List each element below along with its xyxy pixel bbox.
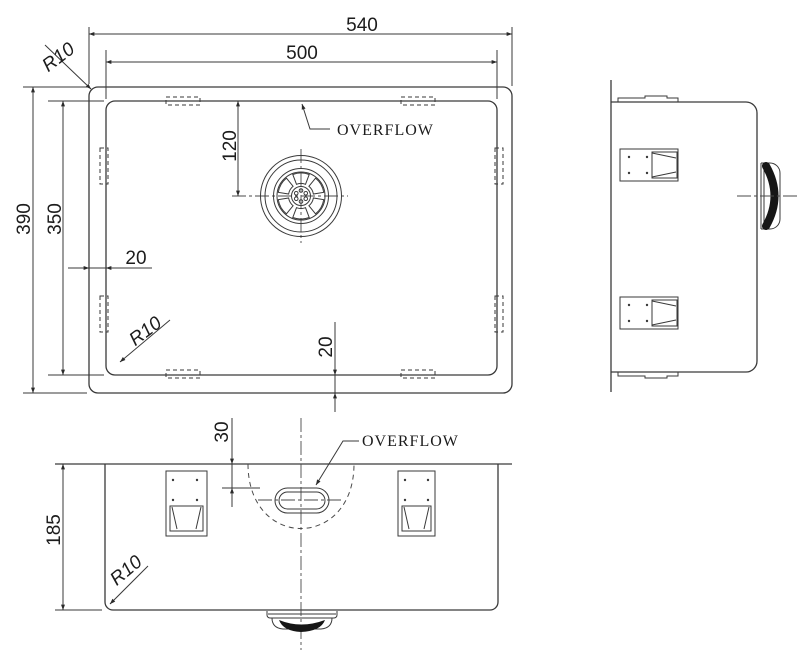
radius-callout-inner: R10 <box>120 312 170 362</box>
front-drain-fitting <box>267 611 337 632</box>
radius-inner-label: R10 <box>125 312 166 350</box>
overflow-callout-front: OVERFLOW <box>316 433 459 485</box>
technical-drawing-canvas: 540 500 390 350 120 <box>0 0 800 668</box>
dim-left-gap-label: 20 <box>125 248 146 269</box>
bowl-profile <box>611 102 757 372</box>
outer-rim-outline <box>89 87 512 393</box>
clip-bottom-left <box>166 370 200 378</box>
front-view: 30 OVERFLOW 185 R10 <box>44 418 512 650</box>
radius-callout-front: R10 <box>106 551 148 604</box>
radius-front-label: R10 <box>106 551 147 590</box>
bowl-outline <box>106 101 497 375</box>
side-bracket-upper <box>620 149 678 181</box>
overflow-callout-plan: OVERFLOW <box>302 104 434 139</box>
radius-callout-outer: R10 <box>38 38 91 89</box>
side-bracket-lower <box>620 297 678 329</box>
clip-left-upper <box>100 148 108 184</box>
dim-inner-width-label: 500 <box>286 43 318 64</box>
dimension-inner-width: 500 <box>106 43 497 99</box>
dim-outer-width-label: 540 <box>346 15 378 36</box>
dimension-outer-depth: 390 <box>14 87 87 393</box>
overflow-side-profile <box>737 163 799 229</box>
clip-left-lower <box>100 296 108 332</box>
dim-bowl-depth-label: 185 <box>44 514 65 546</box>
dimension-left-gap: 20 <box>68 248 152 269</box>
dim-drain-offset-label: 120 <box>220 130 241 162</box>
sink-drawing-svg: 540 500 390 350 120 <box>0 0 800 668</box>
radius-outer-label: R10 <box>38 38 79 76</box>
dim-overflow-offset-label: 30 <box>212 421 233 442</box>
dim-outer-depth-label: 390 <box>14 203 35 235</box>
bowl-front-outline <box>105 464 498 610</box>
front-bracket-right <box>398 471 435 536</box>
clip-edge-bottom <box>618 372 678 378</box>
clip-edge-top <box>618 96 678 102</box>
dimension-drain-offset: 120 <box>220 101 241 196</box>
top-view: 540 500 390 350 120 <box>14 15 512 412</box>
dimension-inner-depth: 350 <box>45 101 104 375</box>
overflow-label-front: OVERFLOW <box>362 433 459 450</box>
overflow-label-plan: OVERFLOW <box>337 122 434 139</box>
drain-strainer <box>232 149 348 243</box>
front-bracket-left <box>166 471 207 536</box>
dimension-bowl-depth: 185 <box>44 464 102 610</box>
clip-right-upper <box>495 148 503 184</box>
side-view <box>611 80 799 392</box>
dimension-bottom-gap: 20 <box>316 322 337 412</box>
clip-bottom-right <box>401 370 435 378</box>
dim-inner-depth-label: 350 <box>45 203 66 235</box>
clip-right-lower <box>495 296 503 332</box>
mounting-clips-plan <box>100 97 503 378</box>
dim-bottom-gap-label: 20 <box>316 336 337 357</box>
